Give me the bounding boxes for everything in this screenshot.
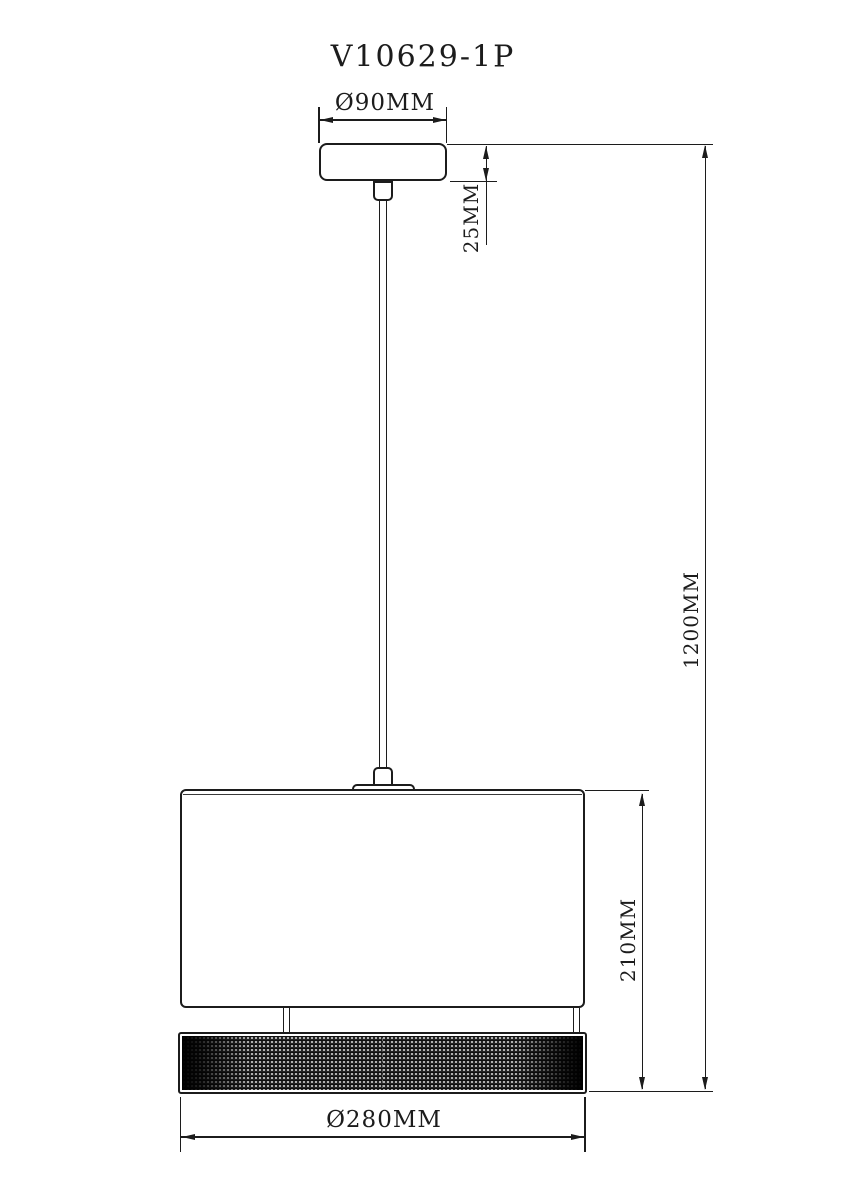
drawing-title: V10629-1P: [331, 40, 516, 75]
support-rod-right: [573, 1008, 581, 1033]
extension-line: [180, 1097, 182, 1152]
dimension-line: [181, 1136, 584, 1138]
shade-top-rim-line: [183, 794, 582, 795]
dimension-line: [320, 119, 447, 121]
extension-line: [447, 144, 713, 146]
arrowhead-up-icon: [702, 145, 708, 158]
arrowhead-down-icon: [702, 1077, 708, 1090]
dim-shade-diameter-label: Ø280MM: [326, 1107, 442, 1133]
extension-line: [589, 1091, 713, 1093]
dim-canopy-diameter-label: Ø90MM: [335, 90, 435, 116]
arrowhead-right-icon: [571, 1134, 584, 1140]
arrowhead-up-icon: [639, 793, 645, 806]
extension-line: [318, 107, 320, 143]
arrowhead-right-icon: [433, 117, 446, 123]
support-rod-left: [283, 1008, 291, 1033]
extension-line: [585, 790, 649, 792]
arrowhead-up-icon: [483, 146, 489, 159]
arrowhead-down-icon: [639, 1077, 645, 1090]
dim-shade-height-label: 210MM: [616, 898, 640, 982]
cord-grip-fitting: [373, 181, 393, 201]
dim-overall-height-label: 1200MM: [679, 571, 703, 669]
dimension-line: [486, 146, 488, 245]
dim-canopy-height-label: 25MM: [459, 183, 483, 253]
lampshade-drum: [180, 789, 585, 1008]
suspension-cable: [379, 200, 387, 768]
dimension-line: [705, 146, 707, 1089]
arrowhead-down-icon: [483, 168, 489, 181]
technical-drawing-canvas: V10629-1P Ø90MM 25MM 210MM: [0, 0, 848, 1200]
dimension-line: [642, 794, 644, 1089]
arrowhead-left-icon: [320, 117, 333, 123]
extension-line: [446, 107, 448, 143]
ceiling-canopy: [319, 143, 447, 181]
extension-line: [584, 1097, 586, 1152]
mesh-center-seam: [382, 1038, 383, 1088]
arrowhead-left-icon: [182, 1134, 195, 1140]
extension-line: [450, 181, 497, 183]
